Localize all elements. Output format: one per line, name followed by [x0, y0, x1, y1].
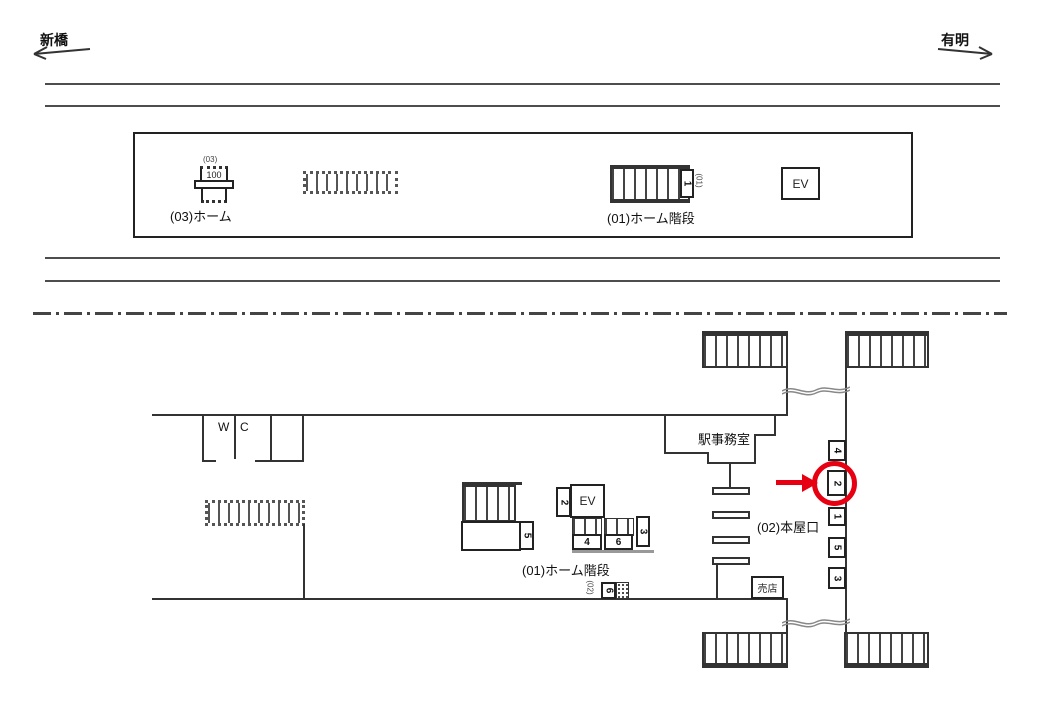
break-symbol-top [782, 382, 850, 398]
station-map: 新橋 有明 (03) 100 (03)ホーム 1 (01) (01)ホーム階段 … [0, 0, 1040, 720]
concourse-stairs-label: (01)ホーム階段 [522, 560, 610, 579]
left-direction-arrow [20, 44, 92, 60]
concourse-bottom-wall [152, 598, 788, 600]
kiosk: 売店 [751, 576, 784, 599]
concourse-escalator [205, 500, 305, 526]
ad-slot-4-number: 4 [584, 537, 590, 548]
ad-slot-5-wall-number: 5 [832, 545, 843, 551]
room-wall-bottom [255, 460, 304, 462]
highlight-arrow-shaft [776, 480, 804, 485]
ticket-gate-1 [712, 487, 750, 495]
platform-label-03: (03)ホーム [170, 206, 232, 225]
track-line-4 [45, 280, 1000, 282]
concourse-elevator: EV [570, 484, 605, 518]
ad-slot-5-center: 5 [519, 521, 534, 550]
platform-ad-slot-1: 1 [680, 169, 694, 198]
ad-slot-3-number: 3 [638, 529, 649, 535]
platform-stairs-label: (01)ホーム階段 [607, 208, 695, 227]
break-symbol-bottom [782, 614, 850, 630]
exit-tag: (02) [586, 580, 595, 594]
right-direction-arrow [936, 44, 1002, 60]
exit-hatch-block [616, 582, 629, 599]
gate-connector-bottom [716, 564, 718, 599]
stairs-shadow [572, 550, 654, 553]
station-office-label: 駅事務室 [698, 429, 750, 448]
center-stairs [462, 485, 516, 522]
ad-slot-6-exit: 6 [601, 582, 616, 599]
track-line-3 [45, 257, 1000, 259]
platform-escalator [303, 171, 398, 194]
ad-slot-6-number: 6 [616, 537, 622, 548]
escalator-side-wall [303, 524, 305, 600]
upper-stairs-left [702, 331, 788, 368]
track-line-2 [45, 105, 1000, 107]
ad-slot-2-number: 2 [558, 499, 569, 505]
ad-slot-4-center: 4 [572, 534, 602, 550]
concourse-elevator-label: EV [579, 494, 595, 508]
platform-elevator-label: EV [792, 177, 808, 191]
stairs-landing [461, 521, 521, 551]
ad-slot-1-wall: 1 [828, 507, 846, 526]
platform-stairs [610, 165, 690, 203]
platform-ad-slot-number: 1 [682, 181, 693, 187]
wc-label-w: W [218, 420, 229, 434]
wc-label-c: C [240, 420, 249, 434]
ticket-gate-2 [712, 511, 750, 519]
ticket-gate-3 [712, 536, 750, 544]
ad-slot-6-exit-number: 6 [603, 588, 614, 594]
ad-slot-5-number: 5 [521, 533, 532, 539]
separator-line [33, 312, 1007, 315]
ad-slot-4-wall: 4 [828, 440, 846, 461]
ad-slot-1-wall-number: 1 [832, 514, 843, 520]
platform-sign-base [201, 187, 227, 203]
room-wall-2 [302, 414, 304, 462]
wc-wall-left [202, 414, 204, 462]
ad-slot-4-wall-number: 4 [832, 448, 843, 454]
track-line-1 [45, 83, 1000, 85]
lower-stairs-left [702, 632, 788, 668]
upper-stairs-right [845, 331, 929, 368]
ad-slot-6-center: 6 [604, 534, 633, 550]
room-wall-1 [270, 414, 272, 462]
ad-slot-3-wall: 3 [828, 567, 846, 589]
platform-sign-tag: (03) [203, 155, 217, 164]
platform-elevator: EV [781, 167, 820, 200]
highlight-circle [812, 461, 857, 506]
platform-stairs-tag: (01) [695, 173, 704, 187]
kiosk-label: 売店 [758, 580, 778, 595]
exit-label: (02)本屋口 [757, 517, 819, 536]
platform-sign-value: 100 [206, 170, 221, 180]
ad-slot-5-wall: 5 [828, 537, 846, 558]
gate-connector-top [729, 462, 731, 489]
wc-wall-tick [202, 460, 216, 462]
lower-stairs-right [844, 632, 929, 668]
ad-slot-2-center: 2 [556, 487, 571, 517]
wc-wall-divider [234, 414, 236, 459]
ad-slot-3-wall-number: 3 [832, 575, 843, 581]
ad-slot-3-center: 3 [636, 516, 650, 547]
